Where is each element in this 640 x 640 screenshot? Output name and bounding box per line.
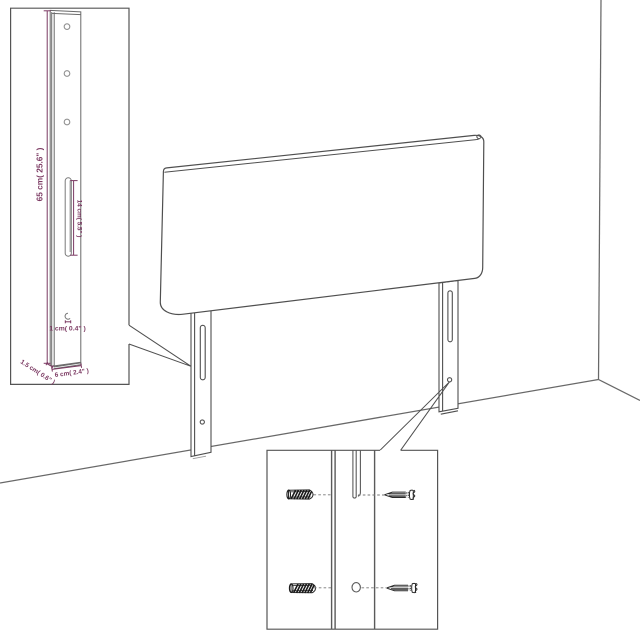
svg-text:65 cm( 25.6" ): 65 cm( 25.6" )	[34, 147, 44, 201]
svg-text:1 cm( 0.4" ): 1 cm( 0.4" )	[49, 326, 85, 333]
svg-text:14 cm( 5.5" ): 14 cm( 5.5" )	[76, 200, 83, 238]
